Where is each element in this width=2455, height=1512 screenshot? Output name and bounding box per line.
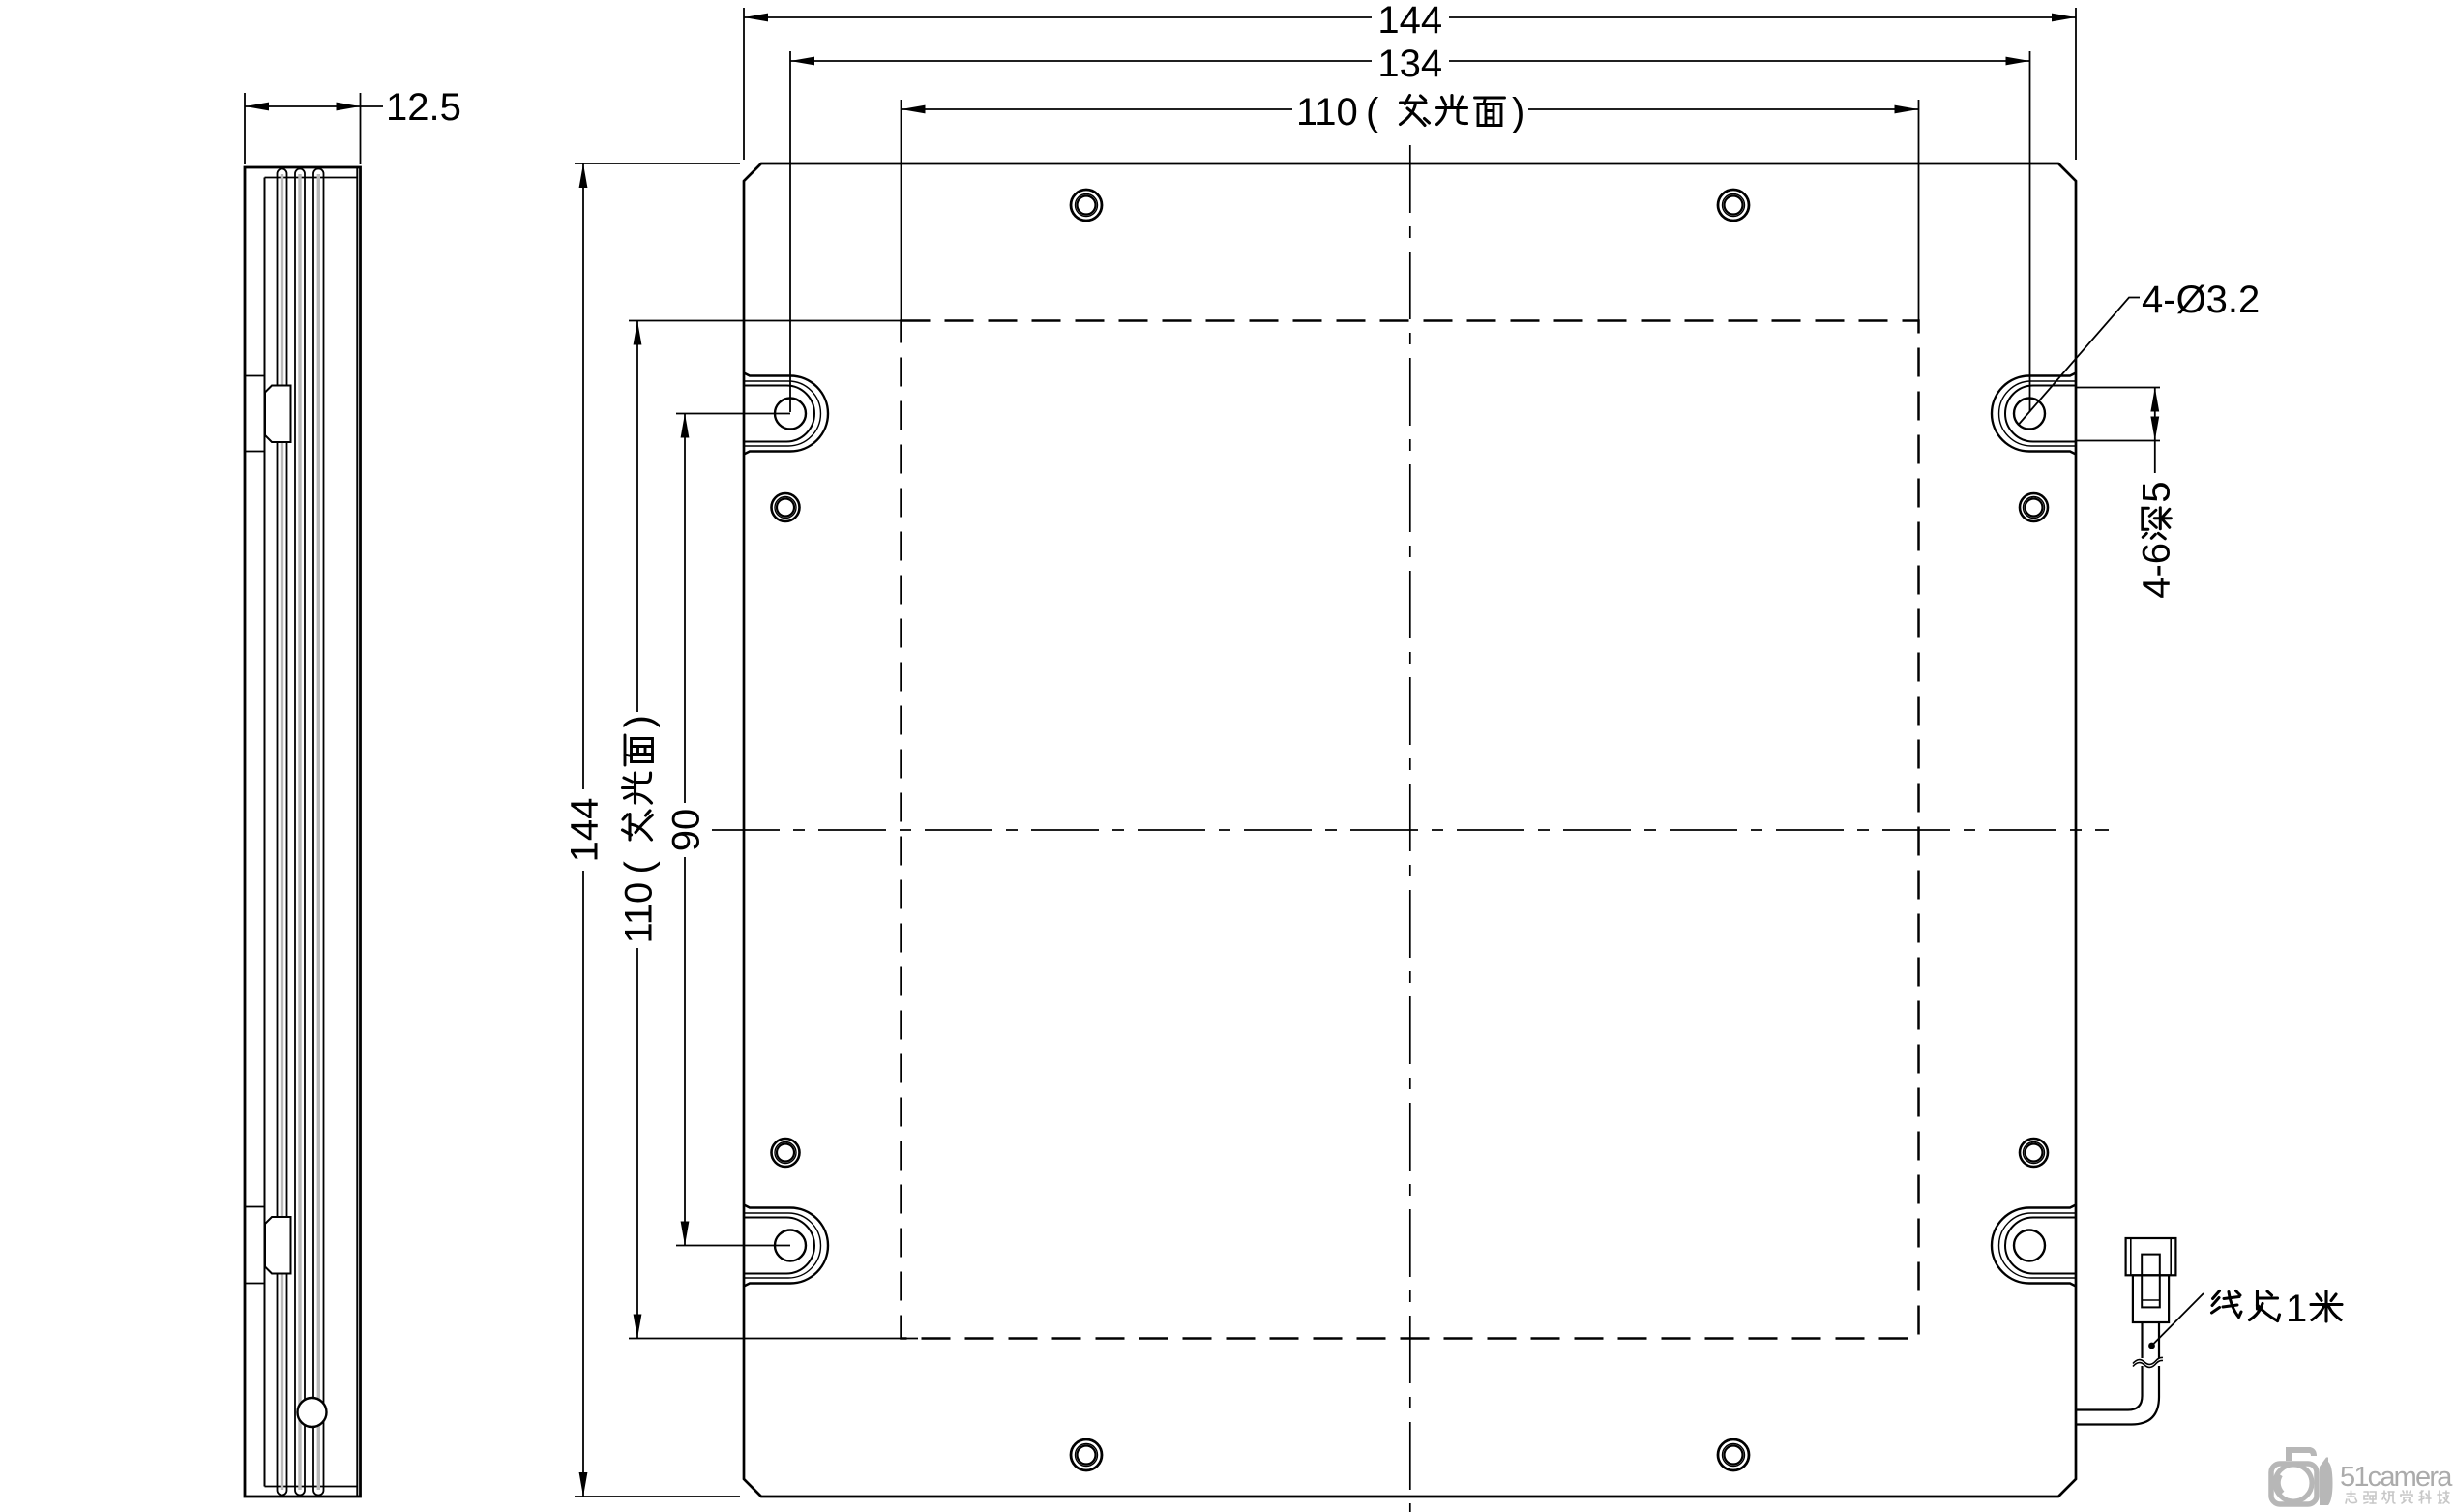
svg-text:12.5: 12.5 <box>386 86 461 129</box>
svg-text:110: 110 <box>1296 91 1358 133</box>
svg-text:5: 5 <box>2135 482 2177 503</box>
svg-text:134: 134 <box>1377 43 1442 85</box>
svg-text:1: 1 <box>2286 1288 2307 1330</box>
svg-text:144: 144 <box>1377 0 1442 42</box>
svg-text:51camera: 51camera <box>2340 1462 2453 1493</box>
svg-text:4-6: 4-6 <box>2135 543 2177 599</box>
svg-text:): ) <box>618 715 661 727</box>
svg-text:90: 90 <box>666 809 708 852</box>
svg-text:4-Ø3.2: 4-Ø3.2 <box>2142 279 2260 321</box>
svg-text:(: ( <box>1366 91 1379 133</box>
svg-text:144: 144 <box>564 798 606 863</box>
svg-text:(: ( <box>618 861 661 875</box>
svg-text:110: 110 <box>618 882 661 944</box>
svg-text:): ) <box>1512 91 1524 133</box>
